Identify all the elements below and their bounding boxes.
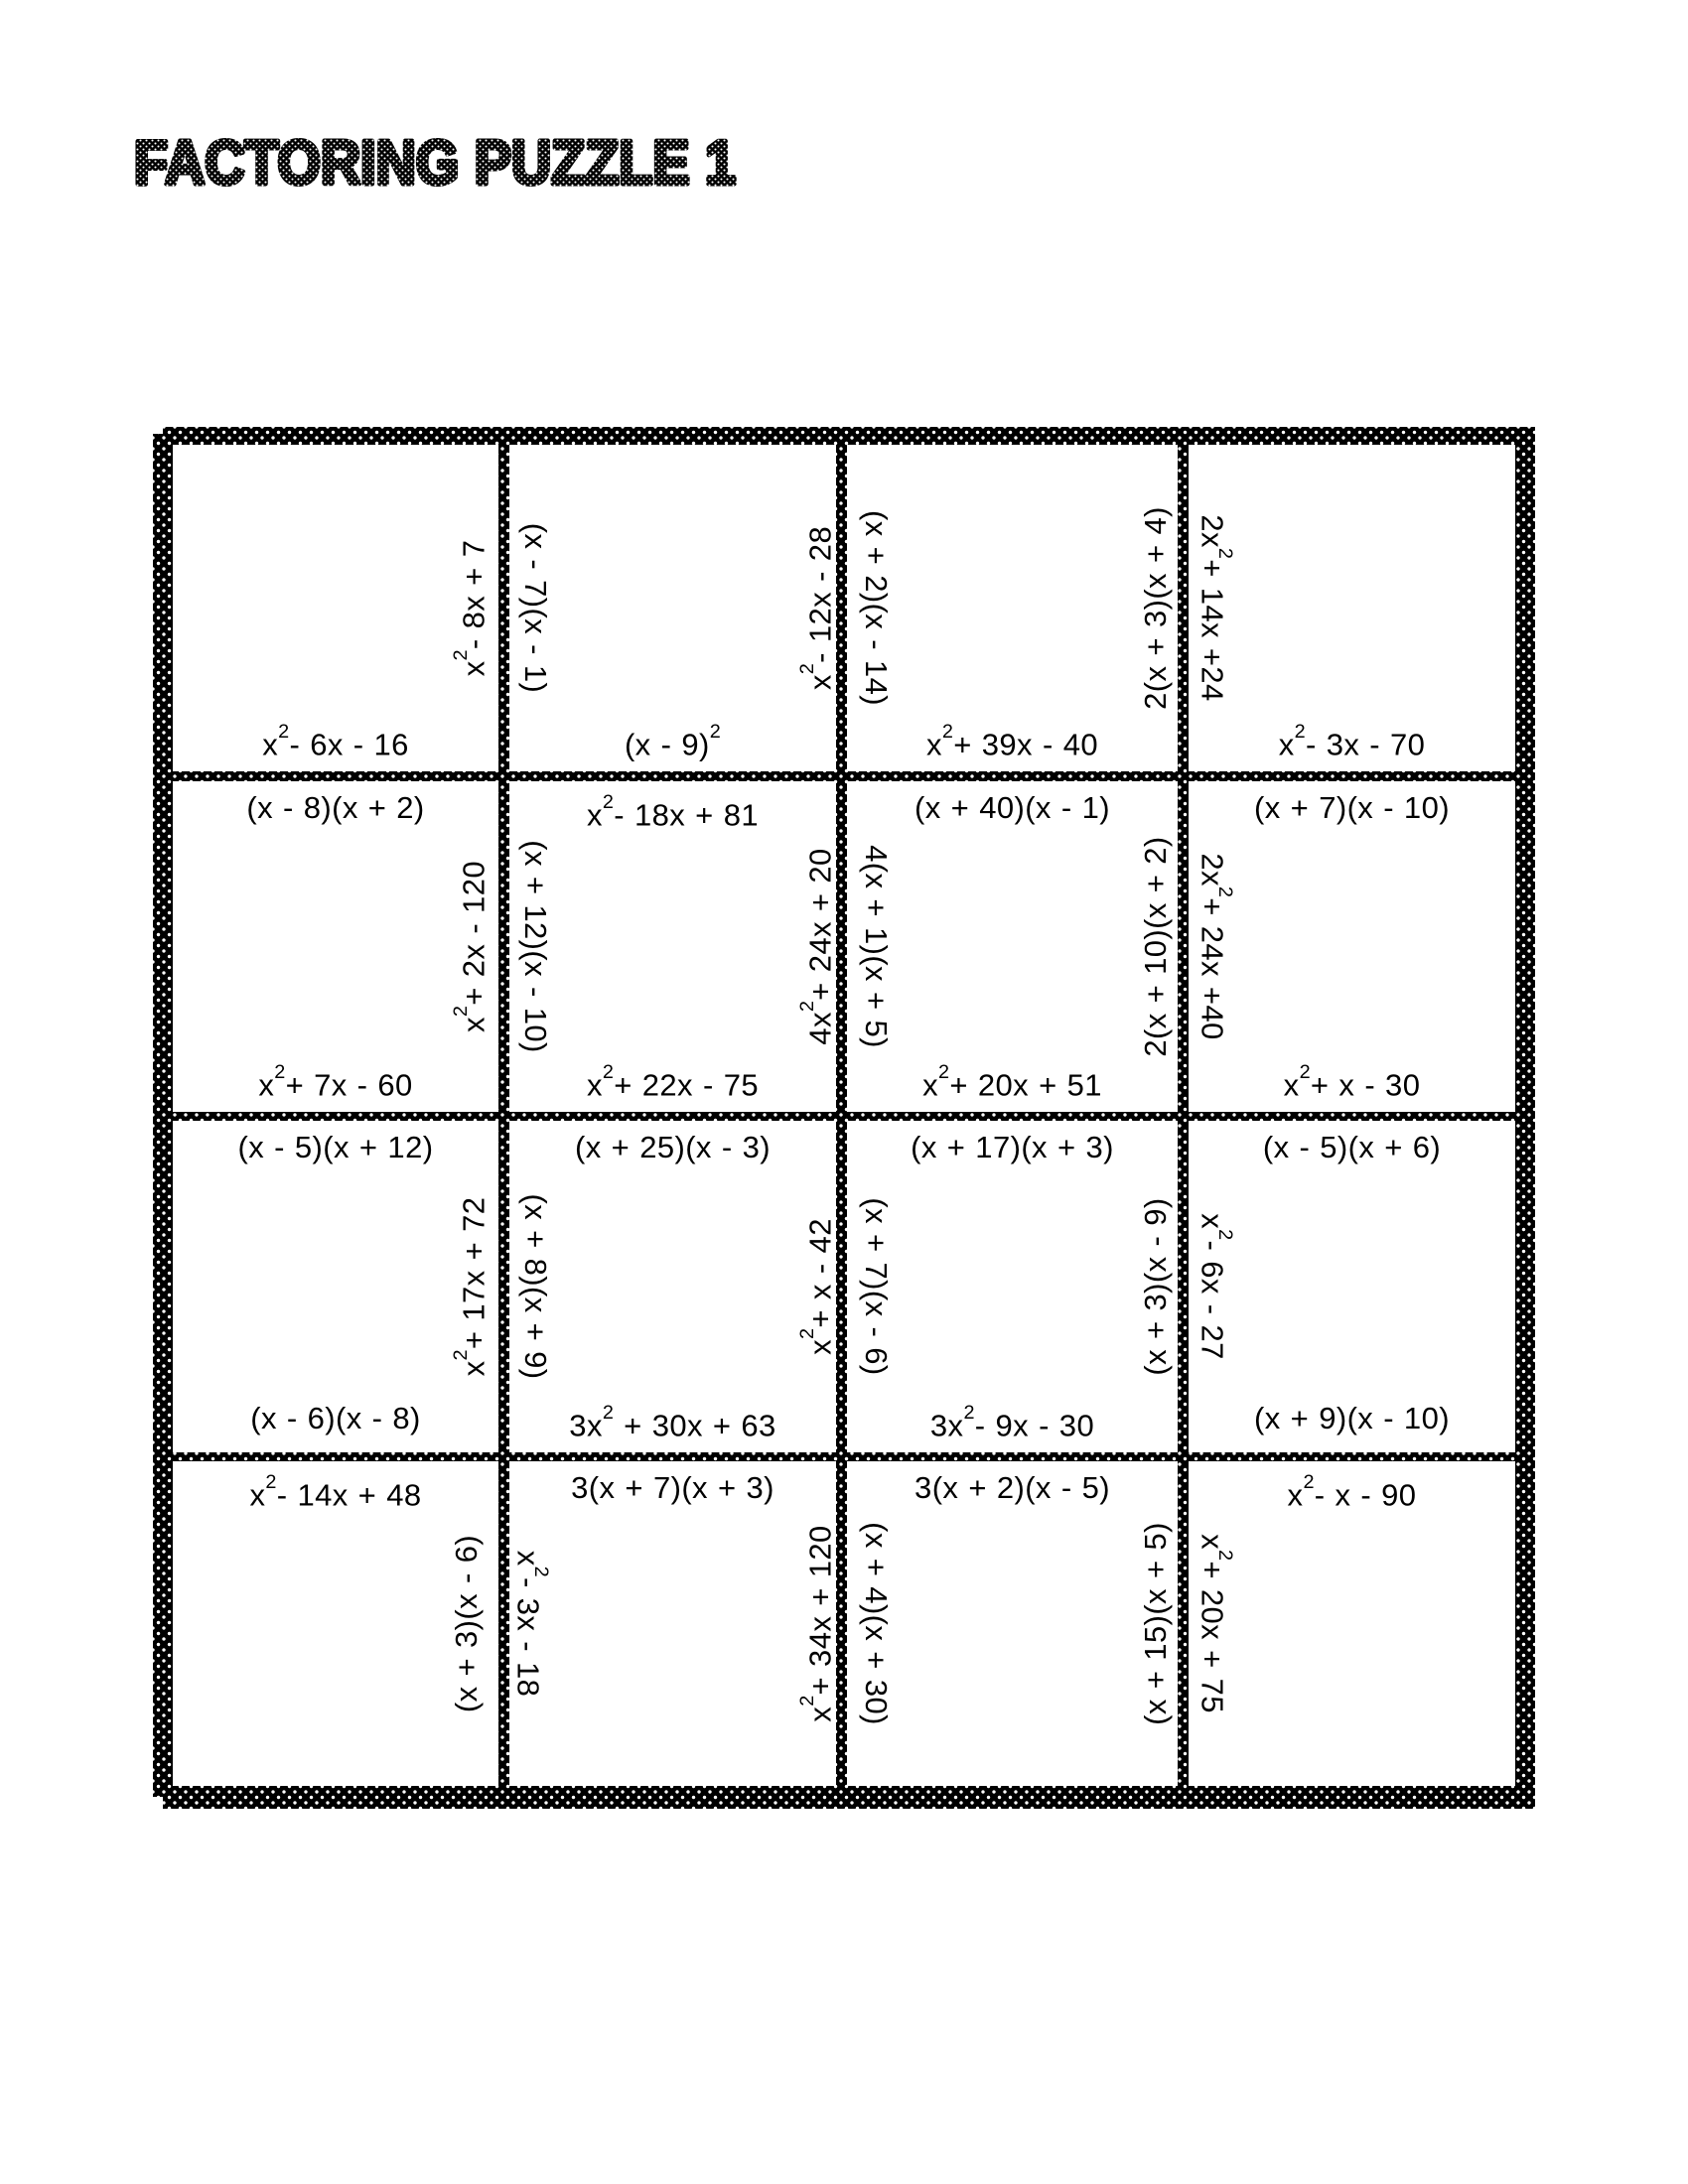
svg-text:FACTORING PUZZLE 1: FACTORING PUZZLE 1 bbox=[134, 129, 736, 198]
